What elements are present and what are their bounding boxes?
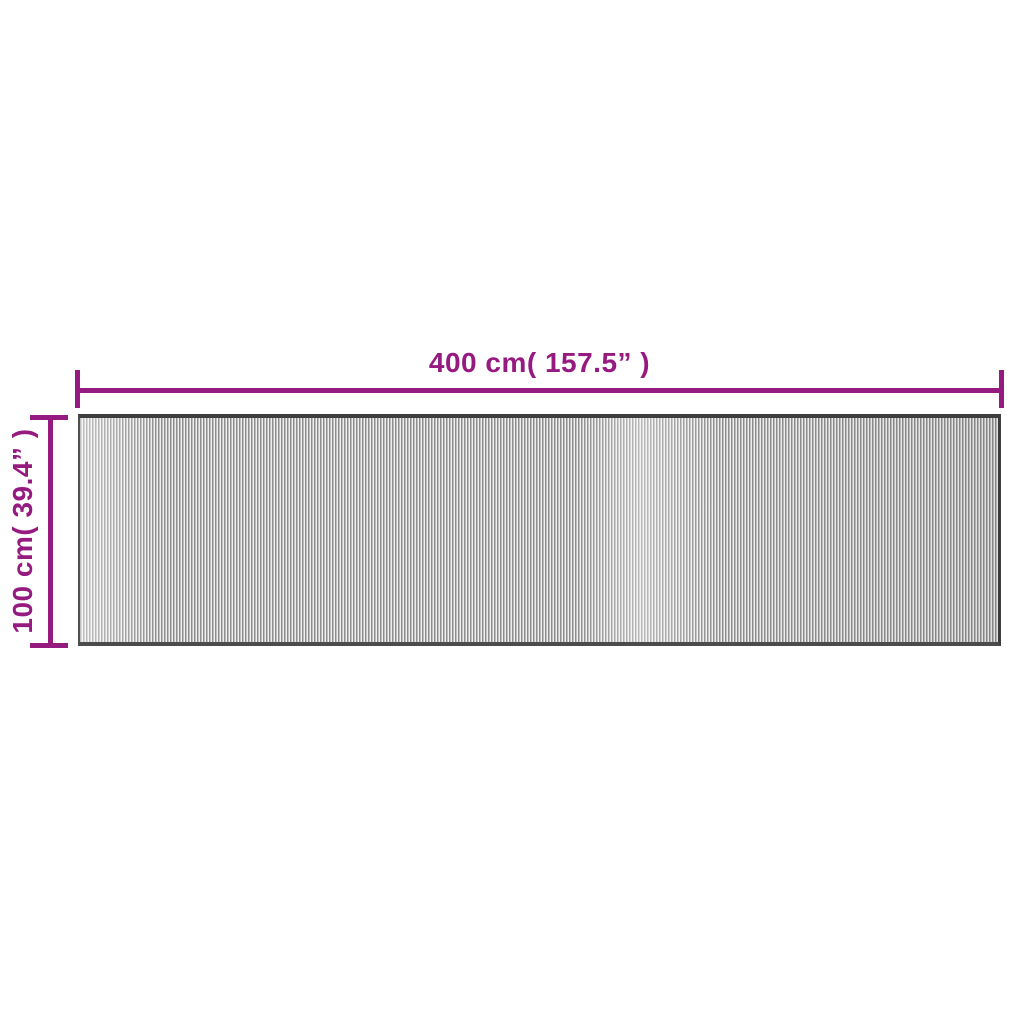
width-dimension-label: 400 cm( 157.5” ) <box>75 342 1004 384</box>
height-dimension-top-cap <box>30 415 68 420</box>
product-dimension-image: 400 cm( 157.5” ) 100 cm( 39.4” ) <box>0 0 1024 1024</box>
height-dimension-bottom-cap <box>30 643 68 648</box>
rug-image <box>78 414 1001 646</box>
width-dimension-left-cap <box>75 370 80 408</box>
height-dimension-line <box>48 415 53 648</box>
width-dimension-line <box>75 388 1004 393</box>
width-dimension-right-cap <box>999 370 1004 408</box>
